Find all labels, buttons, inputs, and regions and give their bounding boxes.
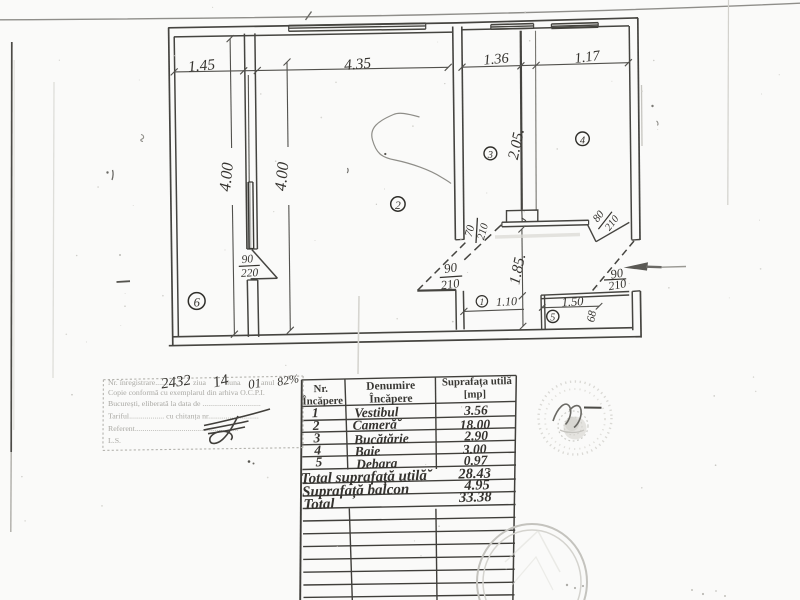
svg-text:Suprafața utilă: Suprafața utilă <box>442 375 513 388</box>
svg-text:Copie conformă cu exemplarul d: Copie conformă cu exemplarul din arhiva … <box>108 388 265 397</box>
svg-text:14: 14 <box>211 371 230 391</box>
svg-text:2.05.: 2.05. <box>505 127 528 161</box>
svg-text:4: 4 <box>580 135 586 146</box>
svg-text:[mp]: [mp] <box>464 388 486 400</box>
svg-text:1.36: 1.36 <box>483 50 510 68</box>
svg-text:80: 80 <box>591 208 608 224</box>
svg-text:Încăpere: Încăpere <box>302 395 343 408</box>
svg-text:Total: Total <box>303 496 335 513</box>
svg-text:82%: 82% <box>276 371 300 389</box>
svg-text:4.35: 4.35 <box>343 55 372 74</box>
svg-text:68: 68 <box>585 309 599 323</box>
svg-text:1.50: 1.50 <box>561 294 584 309</box>
svg-text:București, eliberată la data d: București, eliberată la data de ........… <box>108 399 261 408</box>
svg-text:3.56: 3.56 <box>463 402 488 418</box>
svg-text:4.00: 4.00 <box>271 160 293 191</box>
svg-text:01: 01 <box>247 375 262 392</box>
svg-text:Denumire: Denumire <box>366 380 415 393</box>
svg-text:220: 220 <box>241 267 259 280</box>
svg-text:6: 6 <box>194 295 201 309</box>
svg-text:Nr.: Nr. <box>313 383 328 395</box>
svg-text:1.17: 1.17 <box>574 48 602 67</box>
svg-text:5: 5 <box>315 454 322 469</box>
svg-text:1: 1 <box>480 298 485 308</box>
svg-text:L.S.: L.S. <box>108 436 121 445</box>
svg-text:90: 90 <box>443 259 458 276</box>
svg-text:90: 90 <box>241 253 254 266</box>
svg-text:210: 210 <box>607 276 627 293</box>
svg-text:1.85.: 1.85. <box>506 252 529 286</box>
svg-text:3: 3 <box>487 150 493 161</box>
svg-text:5: 5 <box>550 313 555 324</box>
svg-text:1.10: 1.10 <box>496 294 518 309</box>
svg-text:33.38: 33.38 <box>458 489 493 506</box>
svg-text:4.00: 4.00 <box>215 161 237 192</box>
svg-text:2: 2 <box>395 200 401 212</box>
svg-text:1.45: 1.45 <box>187 56 216 75</box>
svg-text:210: 210 <box>440 276 461 293</box>
